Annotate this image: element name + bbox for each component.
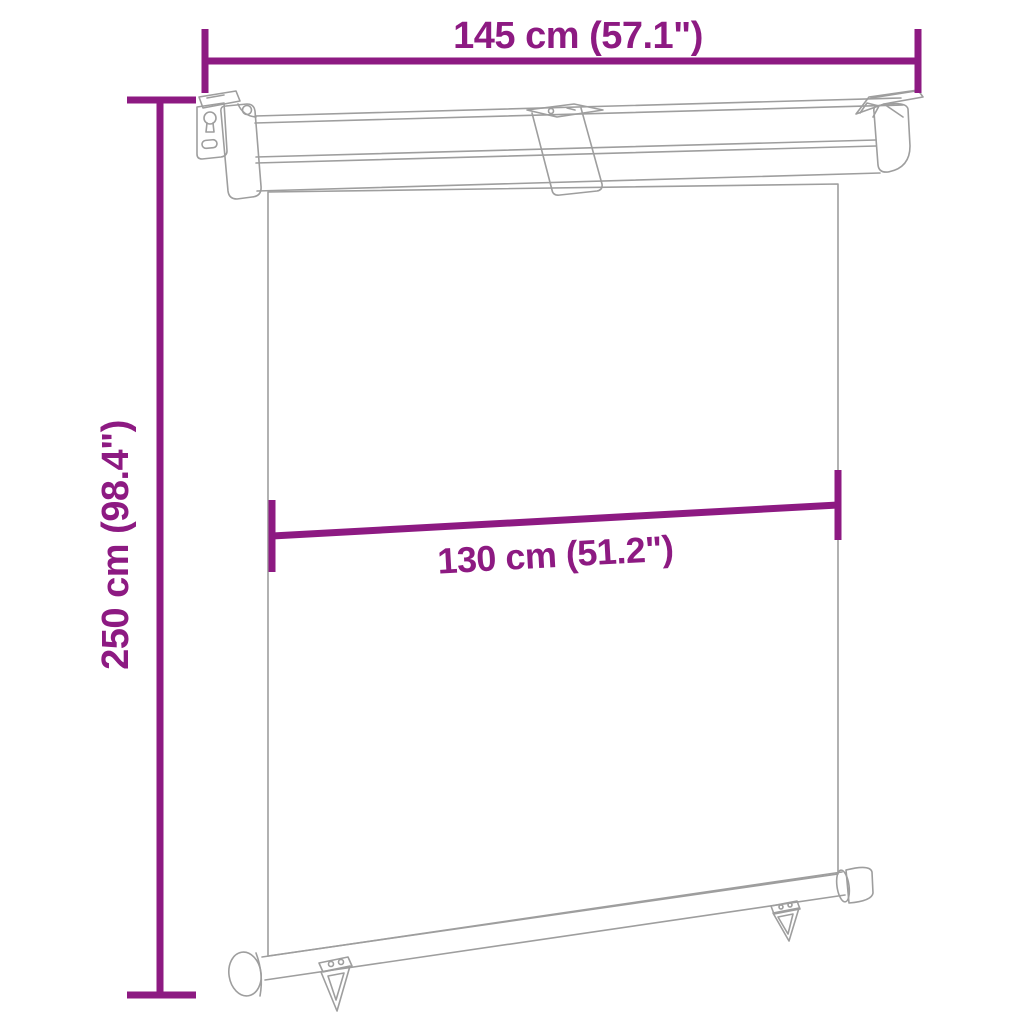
dimension-left-height xyxy=(127,100,196,995)
diagram-canvas: 145 cm (57.1") 250 cm (98.4") 130 cm (51… xyxy=(0,0,1024,1024)
label-top-width: 145 cm (57.1") xyxy=(453,15,703,57)
pull-hook-right xyxy=(771,901,800,941)
label-left-height: 250 cm (98.4") xyxy=(95,420,137,670)
cassette-rail xyxy=(255,98,903,191)
bar-cap-right xyxy=(846,867,873,903)
bottom-bar xyxy=(226,867,873,998)
diagram-page: 145 cm (57.1") 250 cm (98.4") 130 cm (51… xyxy=(0,0,1024,1024)
label-inner-width: 130 cm (51.2") xyxy=(436,527,674,581)
pull-hook-left xyxy=(319,957,352,1011)
wall-mount-bracket-left xyxy=(197,91,240,159)
wall-mount-bracket-right xyxy=(856,90,923,117)
cassette-end-cap-right xyxy=(874,104,910,173)
dimension-lines xyxy=(127,29,919,995)
